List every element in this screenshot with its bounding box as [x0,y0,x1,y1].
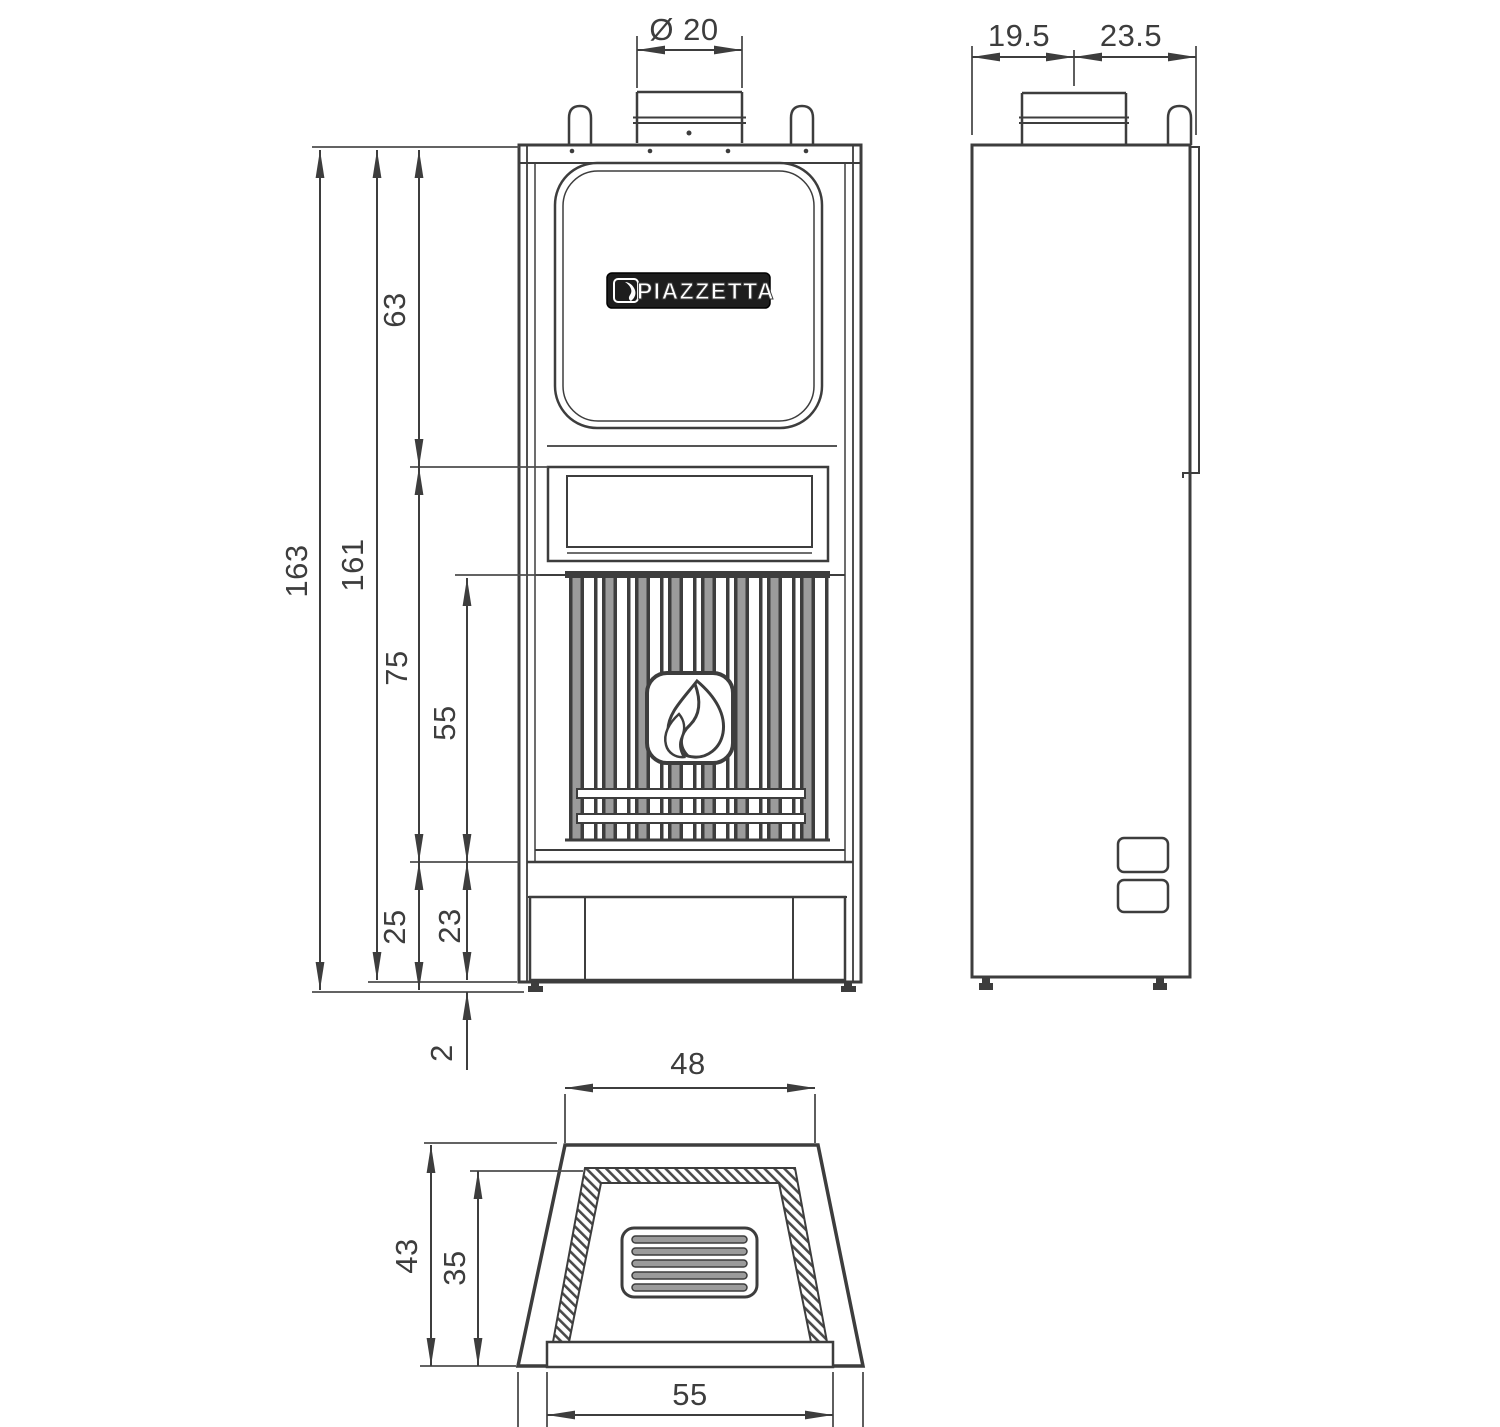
dim-flue-diameter: Ø 20 [649,12,718,47]
front-middle-panel [535,467,845,575]
dim-firebox-height: 55 [427,705,462,740]
grille-rail-top [577,789,805,798]
grille-rail-bottom [577,814,805,823]
plan-base-plate [547,1342,833,1367]
front-left-cap [569,106,591,145]
front-right-cap [791,106,813,145]
dim-inner-depth: 35 [437,1250,472,1285]
side-body [972,145,1190,977]
dim-flue-center-to-front: 23.5 [1100,18,1162,53]
dim-upper-section-height: 63 [377,292,412,327]
dim-middle-section-height: 75 [379,650,414,685]
dim-rear-to-flue-center: 19.5 [988,18,1050,53]
brand-logo-text: PIAZZETTA [637,278,775,304]
front-body [519,145,861,982]
side-view [972,93,1199,990]
side-feet [979,977,1167,990]
side-flue-pipe [1019,93,1129,145]
drawing-svg: PIAZZETTA [0,0,1500,1427]
dim-body-height: 161 [335,538,370,591]
front-flue-pipe [633,92,746,143]
dim-base-width: 55 [672,1377,707,1412]
side-access-panel-lower [1118,880,1168,912]
flame-logo-icon [647,673,733,763]
brand-plate: PIAZZETTA [607,273,775,308]
front-view: PIAZZETTA [519,92,861,992]
dim-plinth-with-feet-height: 25 [377,909,412,944]
dim-overall-height: 163 [279,544,314,597]
technical-drawing: PIAZZETTA [0,0,1500,1427]
front-base [527,862,853,980]
dim-plinth-height: 23 [432,908,467,943]
plan-vent-grille [622,1228,757,1297]
dim-feet-clearance: 2 [424,1044,459,1062]
side-handle-cap [1168,106,1191,145]
plan-view [518,1145,863,1367]
side-access-panel-upper [1118,838,1168,872]
dim-top-width: 48 [670,1046,705,1081]
dim-overall-depth: 43 [389,1238,424,1273]
